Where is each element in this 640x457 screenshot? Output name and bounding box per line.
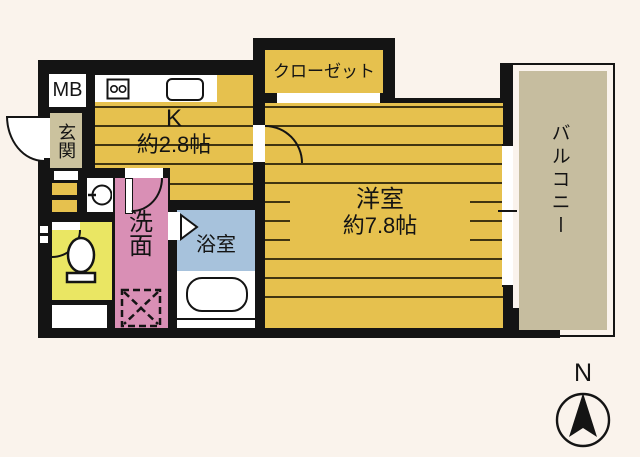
kitchen-size: 約2.8帖 <box>137 133 212 158</box>
meter-box-label: MB <box>49 74 86 107</box>
window-icon <box>502 144 513 287</box>
compass-north-label: N <box>566 358 600 388</box>
western-room-label: 洋室 約7.8帖 <box>290 184 470 241</box>
bath-door-icon <box>179 213 201 241</box>
kitchen-label: K 約2.8帖 <box>95 102 253 162</box>
floor-plan: バルコニー MB K 約2.8帖 玄関 洗面 <box>0 0 640 457</box>
entrance-door-arc-icon <box>6 116 44 162</box>
toilet-door-leaf <box>52 222 80 230</box>
hallway-step-2 <box>52 200 77 212</box>
stove-icon <box>106 78 130 100</box>
toilet-window-icon <box>40 226 48 233</box>
washing-machine-icon <box>119 287 163 329</box>
kitchen-label-k: K <box>166 106 182 133</box>
lower-alcove <box>52 305 107 328</box>
entrance-label: 玄関 <box>50 113 82 168</box>
toilet-window-icon-2 <box>40 236 48 243</box>
washroom-door-gap <box>125 168 163 178</box>
toilet-icon <box>62 236 100 288</box>
window-center-tick <box>498 210 517 212</box>
closet-door-strip <box>277 93 380 103</box>
western-room-name: 洋室 <box>356 187 404 214</box>
wash-basin-icon <box>88 182 112 209</box>
kitchen-floor-ext <box>170 168 253 200</box>
washroom-label: 洗面 <box>121 200 153 266</box>
western-room-size: 約7.8帖 <box>343 214 418 239</box>
bathroom-vent-strip <box>177 320 255 328</box>
entrance-step <box>54 171 78 180</box>
western-room-door-gap <box>253 125 265 162</box>
balcony-label: バルコニー <box>542 95 576 265</box>
bathtub-icon <box>186 277 248 312</box>
hallway-step-1 <box>52 183 77 195</box>
kitchen-sink-icon <box>166 78 204 101</box>
closet-label: クローゼット <box>263 55 385 89</box>
compass-needle-icon <box>554 388 614 450</box>
